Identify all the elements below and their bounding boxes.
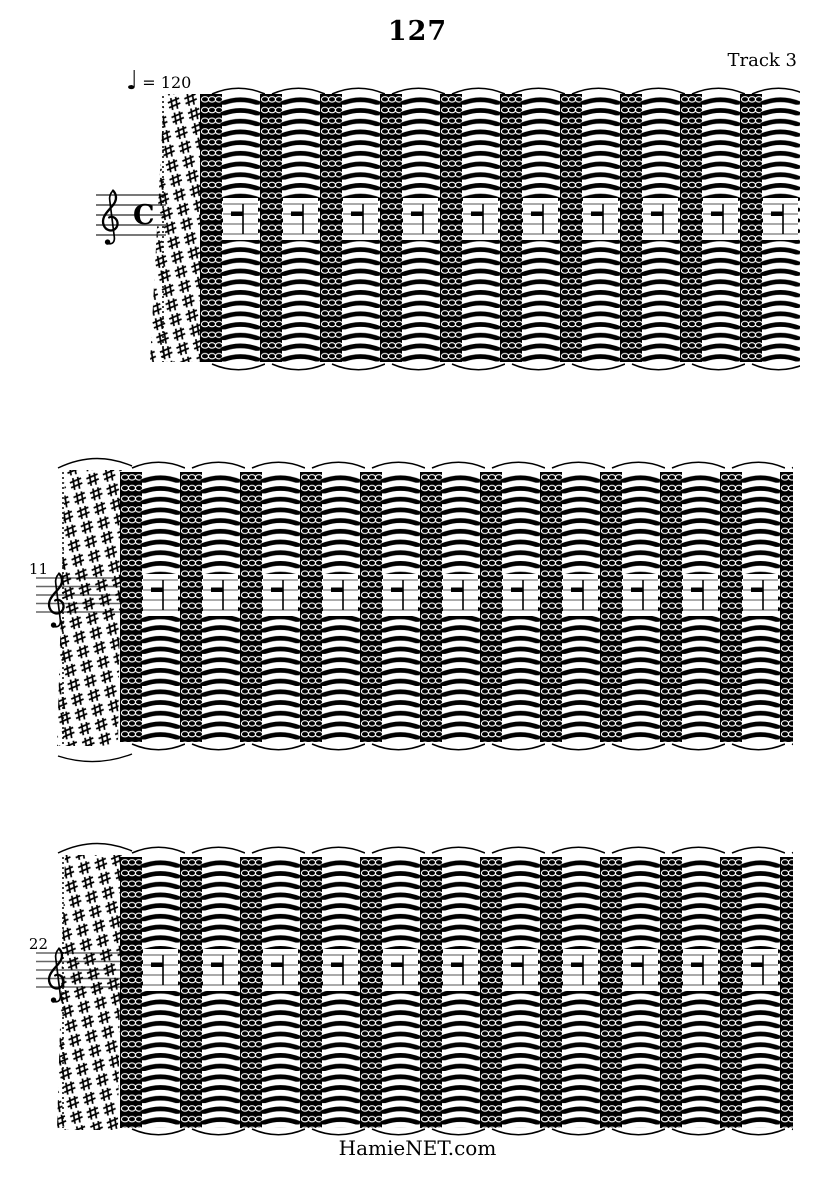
measure-number-22: 22 [24, 935, 48, 953]
measure-number-11: 11 [24, 560, 48, 578]
system-3 [36, 841, 793, 1141]
track-label: Track 3 [727, 50, 797, 71]
system-2 [36, 456, 793, 762]
system-3-top-slurs [125, 841, 793, 854]
system-1: C [96, 82, 800, 376]
sheet-music-page: C [0, 0, 835, 1181]
system-3-texture [120, 857, 793, 1128]
quarter-note-icon: ♩ [126, 70, 138, 92]
system-2-texture [120, 472, 793, 742]
system-2-top-slurs [125, 456, 793, 469]
system-1-bottom-slurs [205, 363, 800, 376]
time-signature: C [133, 200, 155, 231]
treble-clef-icon [103, 191, 118, 245]
footer-watermark: HamieNET.com [0, 1136, 835, 1160]
page-title: 127 [0, 16, 835, 47]
system-1-key-signature-wall [150, 94, 207, 362]
score-notation-canvas: C [0, 0, 835, 1181]
tempo-value: = 120 [142, 70, 191, 96]
tempo-marking: ♩ = 120 [126, 70, 191, 96]
system-2-bottom-slurs [125, 743, 793, 756]
system-1-top-slurs [205, 82, 800, 95]
system-1-texture [200, 94, 800, 362]
